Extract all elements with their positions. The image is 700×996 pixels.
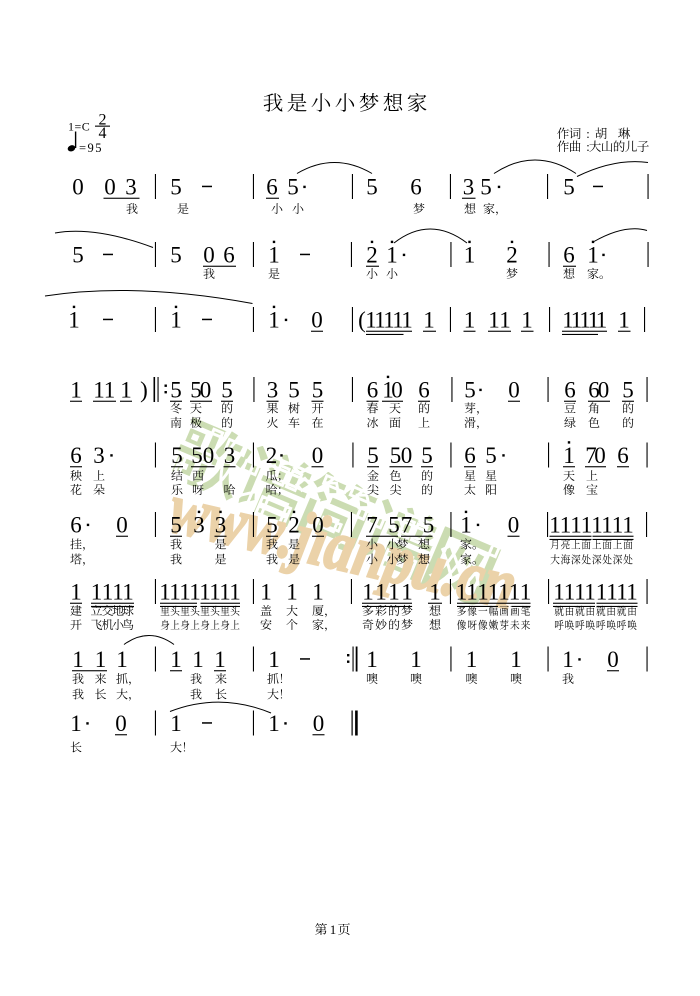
svg-text:2: 2 (506, 243, 518, 268)
svg-text:1: 1 (330, 922, 337, 937)
svg-text:0: 0 (312, 513, 324, 538)
svg-text:1: 1 (626, 580, 638, 605)
svg-text:1: 1 (466, 580, 478, 605)
svg-text:6: 6 (223, 243, 235, 268)
svg-text:1: 1 (464, 243, 476, 268)
svg-text:3: 3 (463, 175, 475, 200)
svg-text:1: 1 (562, 647, 574, 672)
svg-text:7: 7 (366, 513, 378, 538)
svg-text:3: 3 (93, 443, 105, 468)
svg-text:1: 1 (466, 647, 478, 672)
svg-text:5: 5 (221, 378, 233, 403)
svg-text:1: 1 (120, 378, 132, 403)
svg-text:5: 5 (421, 443, 433, 468)
svg-text:5: 5 (266, 513, 278, 538)
svg-text:1: 1 (192, 647, 204, 672)
svg-text:1: 1 (460, 513, 472, 538)
svg-text:6: 6 (70, 513, 82, 538)
svg-text::: : (586, 140, 589, 154)
svg-text:=95: =95 (79, 141, 103, 155)
svg-text:0: 0 (312, 443, 324, 468)
svg-text:1: 1 (229, 580, 241, 605)
svg-text:6: 6 (563, 243, 575, 268)
svg-text:1: 1 (170, 647, 182, 672)
svg-text:1: 1 (520, 580, 532, 605)
svg-text:1: 1 (401, 308, 413, 333)
svg-text:3: 3 (215, 513, 227, 538)
svg-text:1: 1 (268, 308, 280, 333)
svg-text:1: 1 (268, 243, 280, 268)
svg-text:6: 6 (70, 443, 82, 468)
svg-text:5: 5 (171, 443, 183, 468)
svg-text:5: 5 (388, 513, 400, 538)
svg-text:1: 1 (122, 580, 134, 605)
svg-text:1: 1 (622, 513, 634, 538)
svg-text:5: 5 (191, 443, 203, 468)
svg-text:1: 1 (268, 647, 280, 672)
svg-text::: : (586, 127, 589, 141)
svg-text:1: 1 (410, 647, 422, 672)
svg-text:1: 1 (286, 580, 298, 605)
svg-text:1: 1 (509, 580, 521, 605)
svg-text:3: 3 (224, 443, 236, 468)
svg-text:0: 0 (104, 175, 116, 200)
svg-text:5: 5 (170, 378, 182, 403)
svg-text:1: 1 (488, 308, 500, 333)
svg-text:): ) (140, 378, 148, 403)
svg-text:5: 5 (622, 378, 634, 403)
svg-text:7: 7 (401, 513, 413, 538)
svg-text:1: 1 (95, 647, 107, 672)
svg-text:1: 1 (70, 580, 82, 605)
svg-text:1: 1 (116, 647, 128, 672)
svg-text:0: 0 (72, 175, 84, 200)
svg-text:5: 5 (288, 378, 300, 403)
svg-text:0: 0 (200, 378, 212, 403)
svg-text:0: 0 (508, 378, 520, 403)
svg-text:1: 1 (563, 443, 575, 468)
svg-text:5: 5 (170, 175, 182, 200)
svg-text:1: 1 (72, 647, 84, 672)
svg-text:6: 6 (410, 175, 422, 200)
svg-text:0: 0 (594, 443, 606, 468)
svg-text:0: 0 (203, 243, 215, 268)
svg-text:1: 1 (70, 378, 82, 403)
svg-text:2: 2 (288, 513, 300, 538)
svg-text:0: 0 (311, 308, 323, 333)
svg-text:1: 1 (68, 308, 80, 333)
svg-text:5: 5 (367, 443, 379, 468)
svg-text:5: 5 (423, 513, 435, 538)
svg-text:6: 6 (266, 175, 278, 200)
svg-text:1: 1 (510, 647, 522, 672)
svg-text:1: 1 (104, 378, 116, 403)
svg-text:4: 4 (99, 125, 107, 142)
svg-text:1: 1 (521, 308, 533, 333)
svg-text:6: 6 (464, 443, 476, 468)
svg-text:0: 0 (203, 443, 215, 468)
svg-text:0: 0 (598, 378, 610, 403)
svg-text:3: 3 (267, 378, 279, 403)
svg-text:1: 1 (170, 711, 182, 736)
svg-text:5: 5 (485, 443, 497, 468)
svg-text:1: 1 (618, 308, 630, 333)
svg-text:1: 1 (362, 580, 374, 605)
svg-text:5: 5 (464, 378, 476, 403)
svg-text:5: 5 (170, 513, 182, 538)
svg-text:1: 1 (429, 580, 441, 605)
svg-text:1: 1 (70, 711, 82, 736)
svg-text:6: 6 (418, 378, 430, 403)
svg-text:5: 5 (480, 175, 492, 200)
svg-text:2: 2 (266, 443, 278, 468)
svg-text:2: 2 (366, 243, 378, 268)
svg-text:1: 1 (596, 308, 608, 333)
svg-text:0: 0 (115, 711, 127, 736)
svg-text:0: 0 (508, 513, 520, 538)
svg-text:3: 3 (125, 175, 137, 200)
svg-text:6: 6 (367, 378, 379, 403)
svg-text:1: 1 (312, 580, 324, 605)
svg-text:6: 6 (564, 378, 576, 403)
svg-text:6: 6 (617, 443, 629, 468)
svg-text:0: 0 (607, 647, 619, 672)
svg-text:1: 1 (91, 580, 103, 605)
svg-text:0: 0 (401, 443, 413, 468)
svg-text:1: 1 (464, 308, 476, 333)
svg-text:5: 5 (390, 443, 402, 468)
svg-text:1: 1 (584, 580, 596, 605)
svg-text:1: 1 (268, 711, 280, 736)
svg-text:3: 3 (193, 513, 205, 538)
svg-text:1=C: 1=C (68, 120, 90, 134)
svg-text:0: 0 (116, 513, 128, 538)
svg-text:5: 5 (287, 175, 299, 200)
svg-text:1: 1 (375, 580, 387, 605)
svg-text:0: 0 (391, 378, 403, 403)
svg-text:5: 5 (72, 243, 84, 268)
svg-text:1: 1 (423, 308, 435, 333)
svg-text:1: 1 (214, 647, 226, 672)
svg-text:1: 1 (401, 580, 413, 605)
svg-text:5: 5 (366, 175, 378, 200)
svg-text:1: 1 (260, 580, 272, 605)
svg-text:1: 1 (170, 308, 182, 333)
svg-text:5: 5 (312, 378, 324, 403)
svg-text:1: 1 (386, 243, 398, 268)
svg-text:5: 5 (563, 175, 575, 200)
svg-text:0: 0 (313, 711, 325, 736)
svg-text:5: 5 (170, 243, 182, 268)
svg-text:1: 1 (388, 580, 400, 605)
svg-text:1: 1 (366, 647, 378, 672)
svg-text:1: 1 (587, 243, 599, 268)
svg-text:1: 1 (499, 308, 511, 333)
